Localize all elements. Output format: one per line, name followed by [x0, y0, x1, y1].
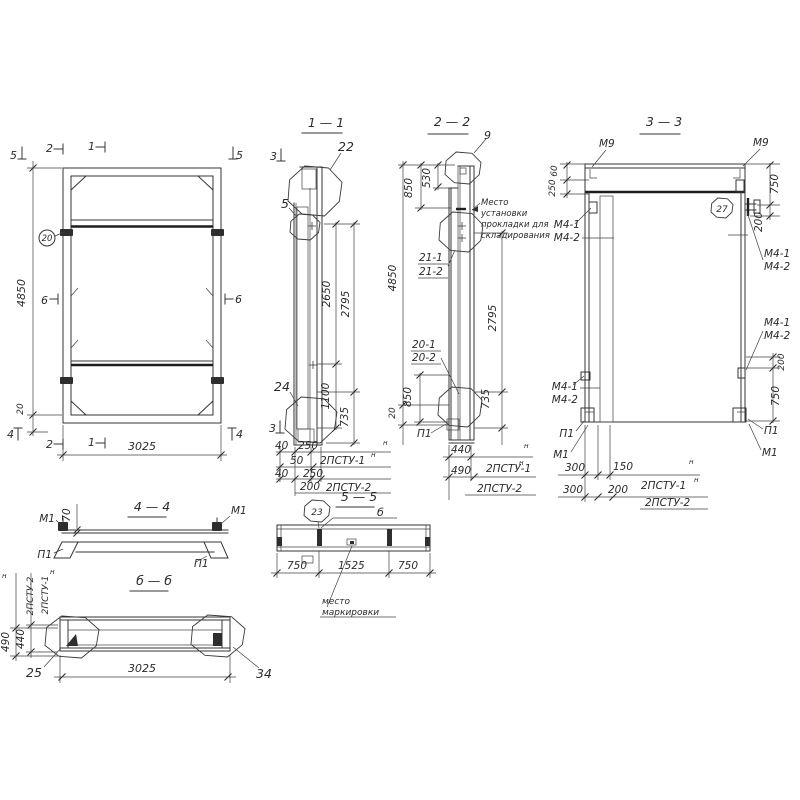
- dim-70: 70: [61, 508, 73, 522]
- engineering-drawing: 4850 20 3025 5 2 1 5 6 6 4 2 1 4 20 1 — …: [0, 0, 800, 800]
- label-pstu1: 2ПСТУ-1: [41, 576, 51, 615]
- pos-p1-left: П1: [37, 549, 52, 561]
- pos-m1-left: М1: [553, 449, 569, 461]
- dim-750-bottom: 750: [770, 386, 782, 406]
- dim-250: 250: [548, 179, 558, 196]
- marking-note-2: маркировки: [322, 608, 379, 618]
- mark-4-bottom-left: 4: [7, 428, 14, 441]
- callout-24: 24: [274, 379, 290, 394]
- dim-750-right: 750: [398, 560, 418, 572]
- callout-27: 27: [716, 205, 728, 215]
- chain2-250: 250: [303, 468, 323, 480]
- callout-20-label: 20: [42, 234, 53, 244]
- pos-p1-left: П1: [559, 428, 574, 440]
- label-pstu2: 2ПСТУ-2: [645, 497, 691, 509]
- chain2-40: 40: [275, 468, 289, 480]
- section-3-3: 3 — 3 27 М9 М9 М4-1 М4-2 М4-1 М4-2 М4-1 …: [548, 114, 791, 509]
- dim-2795: 2795: [487, 304, 499, 331]
- section-4-4-title: 4 — 4: [134, 499, 170, 514]
- chain1-50: 50: [290, 455, 304, 467]
- bolt-rail1-right: [211, 229, 224, 236]
- pos-m1-right: М1: [762, 447, 778, 459]
- bolt-rail2-right: [211, 377, 224, 384]
- dim-front-width: 3025: [128, 440, 156, 453]
- pos-m4-2: М4-2: [764, 330, 791, 342]
- front-section-marks: 5 2 1 5 6 6 4 2 1 4: [7, 140, 243, 451]
- sup-n: н: [50, 568, 55, 576]
- pos-m4-2: М4-2: [554, 232, 581, 244]
- dim-1100: 1100: [320, 382, 332, 409]
- marking-note-1: место: [322, 597, 351, 607]
- dim-4850: 4850: [387, 264, 399, 291]
- chain1-250: 250: [298, 440, 318, 452]
- drawing-sheet: 4850 20 3025 5 2 1 5 6 6 4 2 1 4 20 1 — …: [0, 0, 800, 800]
- mark-6-right: 6: [235, 293, 242, 306]
- chain2-200: 200: [300, 481, 320, 493]
- section-1-1: 1 — 1 22 5 24 3 3 2650 1100 27: [269, 115, 391, 496]
- dim-2795: 2795: [340, 290, 352, 317]
- mark-5-top-left: 5: [10, 149, 17, 162]
- pos-20-1: 20-1: [412, 339, 436, 351]
- dim-440: 440: [15, 629, 27, 649]
- label-pstu1: 2ПСТУ-1: [320, 455, 365, 467]
- callout-5: 5: [281, 196, 289, 211]
- sup-n: н: [689, 458, 694, 466]
- pos-p1-right: П1: [194, 558, 209, 570]
- section-b-b-title: б — б: [136, 573, 172, 588]
- storage-gasket-note: Место установки прокладки для складирова…: [472, 198, 550, 241]
- sup-n: н: [383, 439, 388, 447]
- pos-20-2: 20-2: [412, 352, 436, 364]
- section-2-2-geometry: [447, 166, 474, 443]
- dim-3025: 3025: [128, 662, 156, 675]
- mark-2-bottom: 2: [46, 438, 53, 451]
- front-view: 4850 20 3025 5 2 1 5 6 6 4 2 1 4 20: [7, 140, 243, 461]
- dim-490: 490: [0, 632, 12, 652]
- section-1-1-geometry: [294, 167, 322, 445]
- sup-n: н: [694, 476, 699, 484]
- pos-m4-1: М4-1: [764, 248, 790, 260]
- sup-n: н: [2, 572, 7, 580]
- dim-front-height: 4850: [15, 279, 28, 307]
- note-line-2: установки: [480, 209, 528, 219]
- section-3-3-dimensions: 60 250 750 200 200 750 300 150 н 300 200…: [548, 162, 787, 510]
- section-2-2-title: 2 — 2: [434, 114, 470, 129]
- dim-750-left: 750: [287, 560, 307, 572]
- pos-21-1: 21-1: [419, 252, 443, 264]
- pos-p1-right: П1: [764, 425, 779, 437]
- dim-20: 20: [388, 407, 398, 419]
- chain-300: 300: [565, 462, 585, 474]
- pos-21-2: 21-2: [419, 266, 443, 278]
- section-3-3-geometry: [580, 164, 760, 422]
- callout-9: 9: [484, 129, 491, 142]
- chain1-40: 40: [275, 440, 289, 452]
- chain-490: 490: [451, 465, 471, 477]
- section-b-b-geometry: [60, 617, 230, 651]
- note-line-1: Место: [481, 198, 508, 208]
- label-pstu2: 2ПСТУ-2: [477, 483, 523, 495]
- pos-m4-1: М4-1: [764, 317, 790, 329]
- callout-b: б: [377, 506, 384, 519]
- section-1-1-title: 1 — 1: [308, 115, 344, 130]
- panel-frame-geometry: [60, 168, 224, 423]
- section-4-4-geometry: [54, 518, 228, 558]
- note-line-4: складирования: [481, 231, 550, 241]
- section-5-5: 5 — 5 23 б место маркировки 750 1525 750: [271, 489, 436, 618]
- mark-5-top-right: 5: [236, 149, 243, 162]
- pos-m9-left: М9: [599, 138, 615, 150]
- pos-m9-right: М9: [753, 137, 769, 149]
- sup-n: н: [524, 442, 529, 450]
- dim-1525: 1525: [338, 560, 365, 572]
- chain-200: 200: [608, 484, 628, 496]
- dim-735: 735: [339, 407, 351, 427]
- mark-4-bottom-right: 4: [236, 428, 243, 441]
- pos-m4-2: М4-2: [764, 261, 791, 273]
- section-b-b: б — б 25 34 3025 490 440 2ПСТУ-2 2ПСТУ-1…: [0, 568, 272, 683]
- section-5-5-dimensions: 750 1525 750: [271, 551, 436, 578]
- note-line-3: прокладки для: [481, 220, 549, 230]
- front-dimensions: 4850 20 3025: [15, 161, 227, 461]
- label-pstu1: 2ПСТУ-1: [641, 480, 686, 492]
- dim-850-bottom: 850: [402, 387, 414, 407]
- chain-300-2: 300: [563, 484, 583, 496]
- dim-200-bottom: 200: [777, 353, 787, 370]
- bolt-rail1-left: [60, 229, 73, 236]
- chain-440: 440: [451, 444, 471, 456]
- section-2-2: 2 — 2 9 21-1 21-2 20-1 20-2 П1 Место уст…: [387, 114, 550, 500]
- section-5-5-title: 5 — 5: [341, 489, 377, 504]
- dim-530: 530: [421, 168, 433, 188]
- pos-m4-1: М4-1: [552, 381, 578, 393]
- pos-m4-2: М4-2: [552, 394, 579, 406]
- sup-n: н: [371, 451, 376, 459]
- sup-n: н: [519, 459, 524, 467]
- pos-m1-left: М1: [39, 513, 55, 525]
- dim-735: 735: [480, 389, 492, 409]
- callout-22: 22: [338, 139, 354, 154]
- callout-34: 34: [256, 666, 272, 681]
- label-pstu2: 2ПСТУ-2: [26, 576, 36, 615]
- chain-150: 150: [613, 461, 633, 473]
- dim-850-top: 850: [403, 178, 415, 198]
- dim-750-top: 750: [769, 174, 781, 194]
- section-3-3-callouts: 27 М9 М9 М4-1 М4-2 М4-1 М4-2 М4-1 М4-2 М…: [552, 137, 791, 461]
- section-4-4: 4 — 4 70 М1 М1 П1 П1: [37, 499, 246, 570]
- mark-3-bottom: 3: [269, 422, 276, 435]
- mark-1-bottom: 1: [88, 436, 95, 449]
- mark-6-left: 6: [41, 294, 48, 307]
- dim-60: 60: [550, 165, 560, 177]
- dim-2650: 2650: [321, 280, 333, 307]
- dim-200-top: 200: [753, 212, 765, 232]
- section-1-1-dimensions: 2650 1100 2795 735 40 250 н 50 2ПСТУ-1 н…: [275, 221, 391, 497]
- label-pstu1: 2ПСТУ-1: [486, 463, 531, 475]
- callout-25: 25: [26, 665, 42, 680]
- callout-23: 23: [311, 508, 323, 518]
- mark-1-top: 1: [88, 140, 95, 153]
- dim-front-offset: 20: [16, 403, 26, 415]
- pos-m1-right: М1: [231, 505, 247, 517]
- section-5-5-callouts: 23 б место маркировки: [304, 500, 397, 618]
- pos-m4-1: М4-1: [554, 219, 580, 231]
- section-5-5-geometry: [277, 525, 430, 563]
- section-3-3-title: 3 — 3: [646, 114, 682, 129]
- mark-2-top: 2: [46, 142, 53, 155]
- pos-p1: П1: [417, 428, 432, 440]
- mark-3-top: 3: [270, 150, 277, 163]
- bolt-rail2-left: [60, 377, 73, 384]
